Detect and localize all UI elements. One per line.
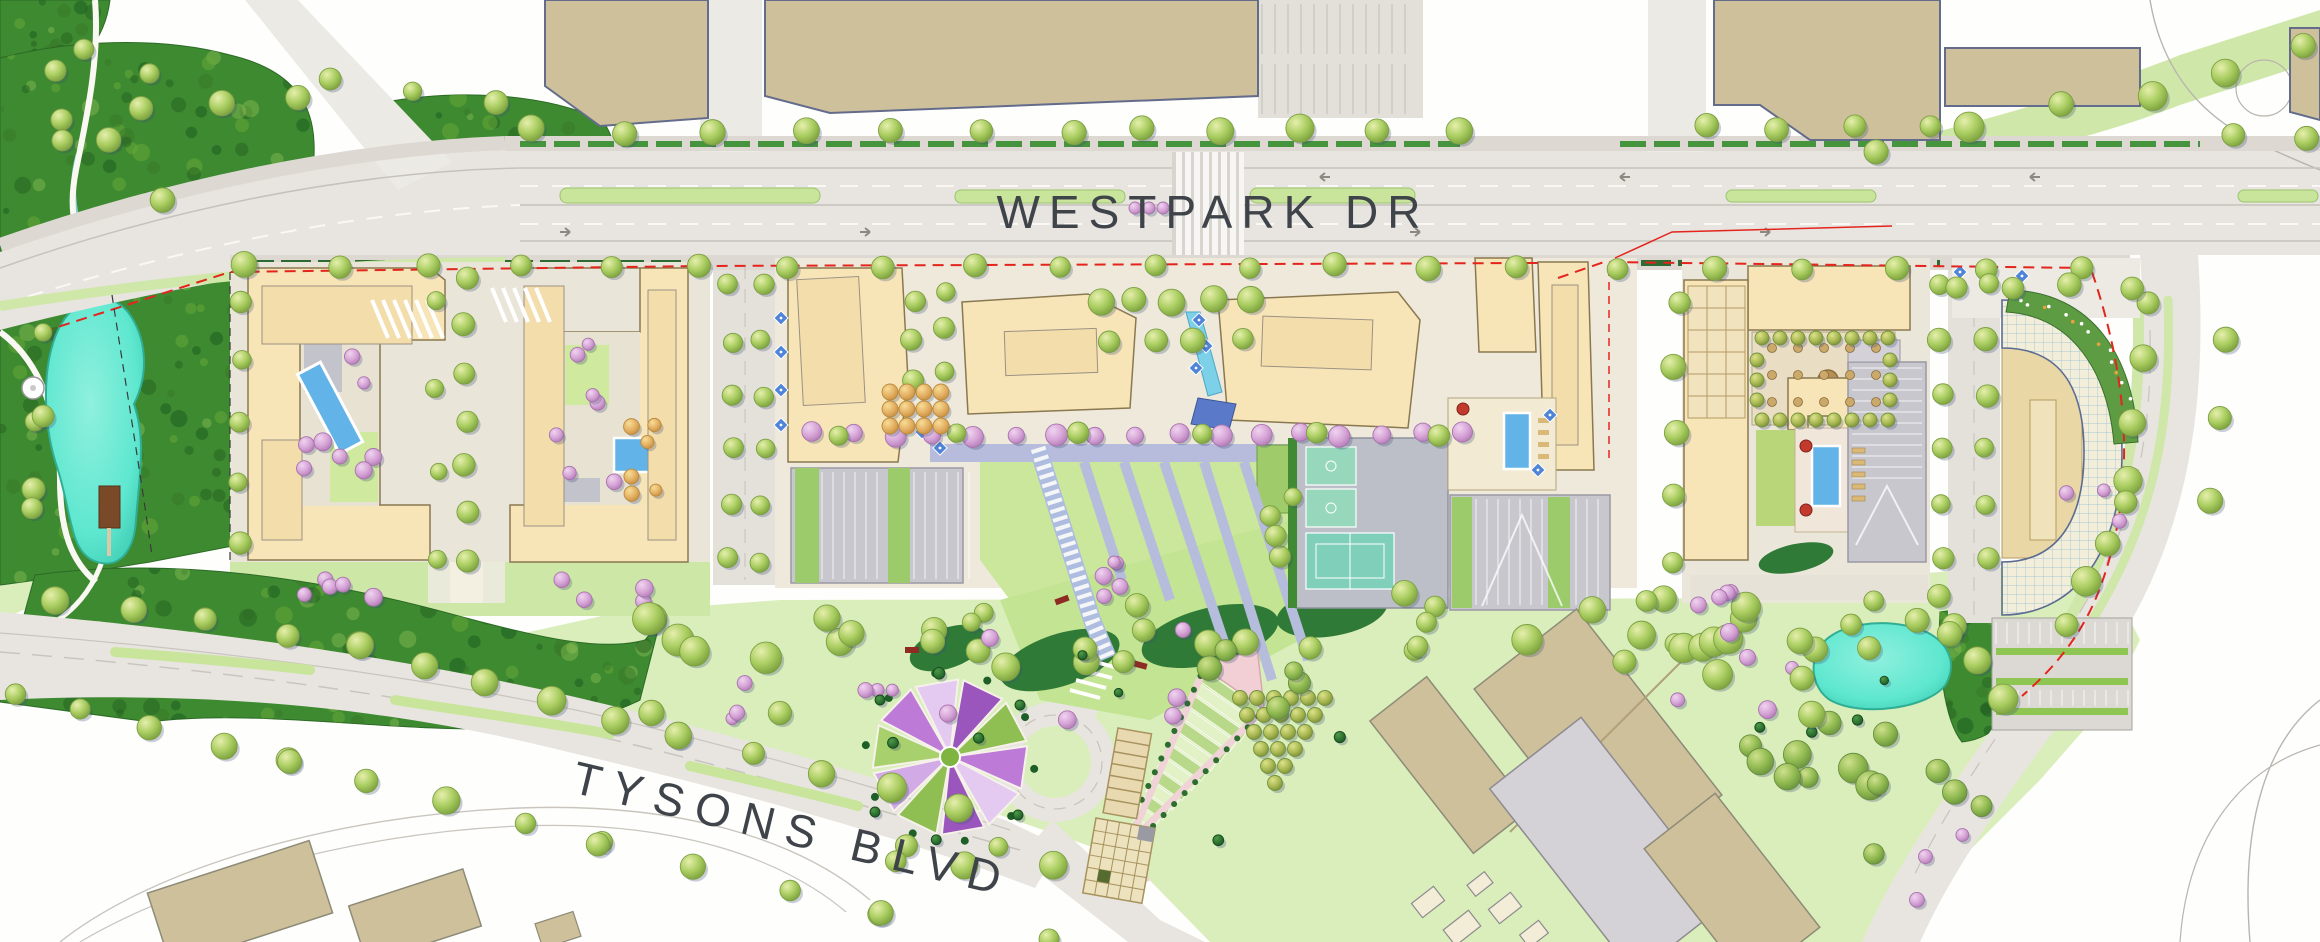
deck-green-band [888,468,910,583]
east-pool [1812,446,1840,506]
sports-deck [1288,438,1448,608]
roof-panel [1261,316,1373,370]
east-block-north-wing [1748,266,1910,330]
roof-panel [524,286,564,526]
roundabout-island [1019,726,1091,798]
site-plan-canvas: WESTPARK DR TYSONS BLVD [0,0,2320,942]
deck-green-band [1548,497,1570,608]
pool [1504,413,1530,469]
park-gazebo-roof [30,385,36,391]
westpark-median [560,188,820,203]
site-plan: WESTPARK DR TYSONS BLVD [0,0,2320,942]
roof-panel [648,290,676,540]
courtyard-b-terrace [560,478,600,502]
crescent-inner-roof [2030,400,2056,540]
existing-building [765,0,1258,113]
trellis-tower [1688,286,1745,418]
roof-panel [797,276,866,405]
basketball-court [1306,447,1356,485]
parking-deck-central [1450,495,1610,610]
deck-planting [1288,438,1297,608]
deck-green-band [1452,497,1472,608]
westpark-dr-label: WESTPARK DR [997,186,1430,238]
roof-panel [1004,328,1097,375]
roof-panel [262,440,302,540]
deck-green-band [795,468,819,583]
pond-dock [99,486,120,528]
westpark-median [1726,190,1876,202]
existing-building [1945,48,2140,106]
westpark-median [2238,190,2318,202]
pond-small [1814,623,1951,709]
basketball-court [1306,489,1356,527]
east-lawn [1756,430,1795,526]
promenade-walk [930,444,1290,462]
